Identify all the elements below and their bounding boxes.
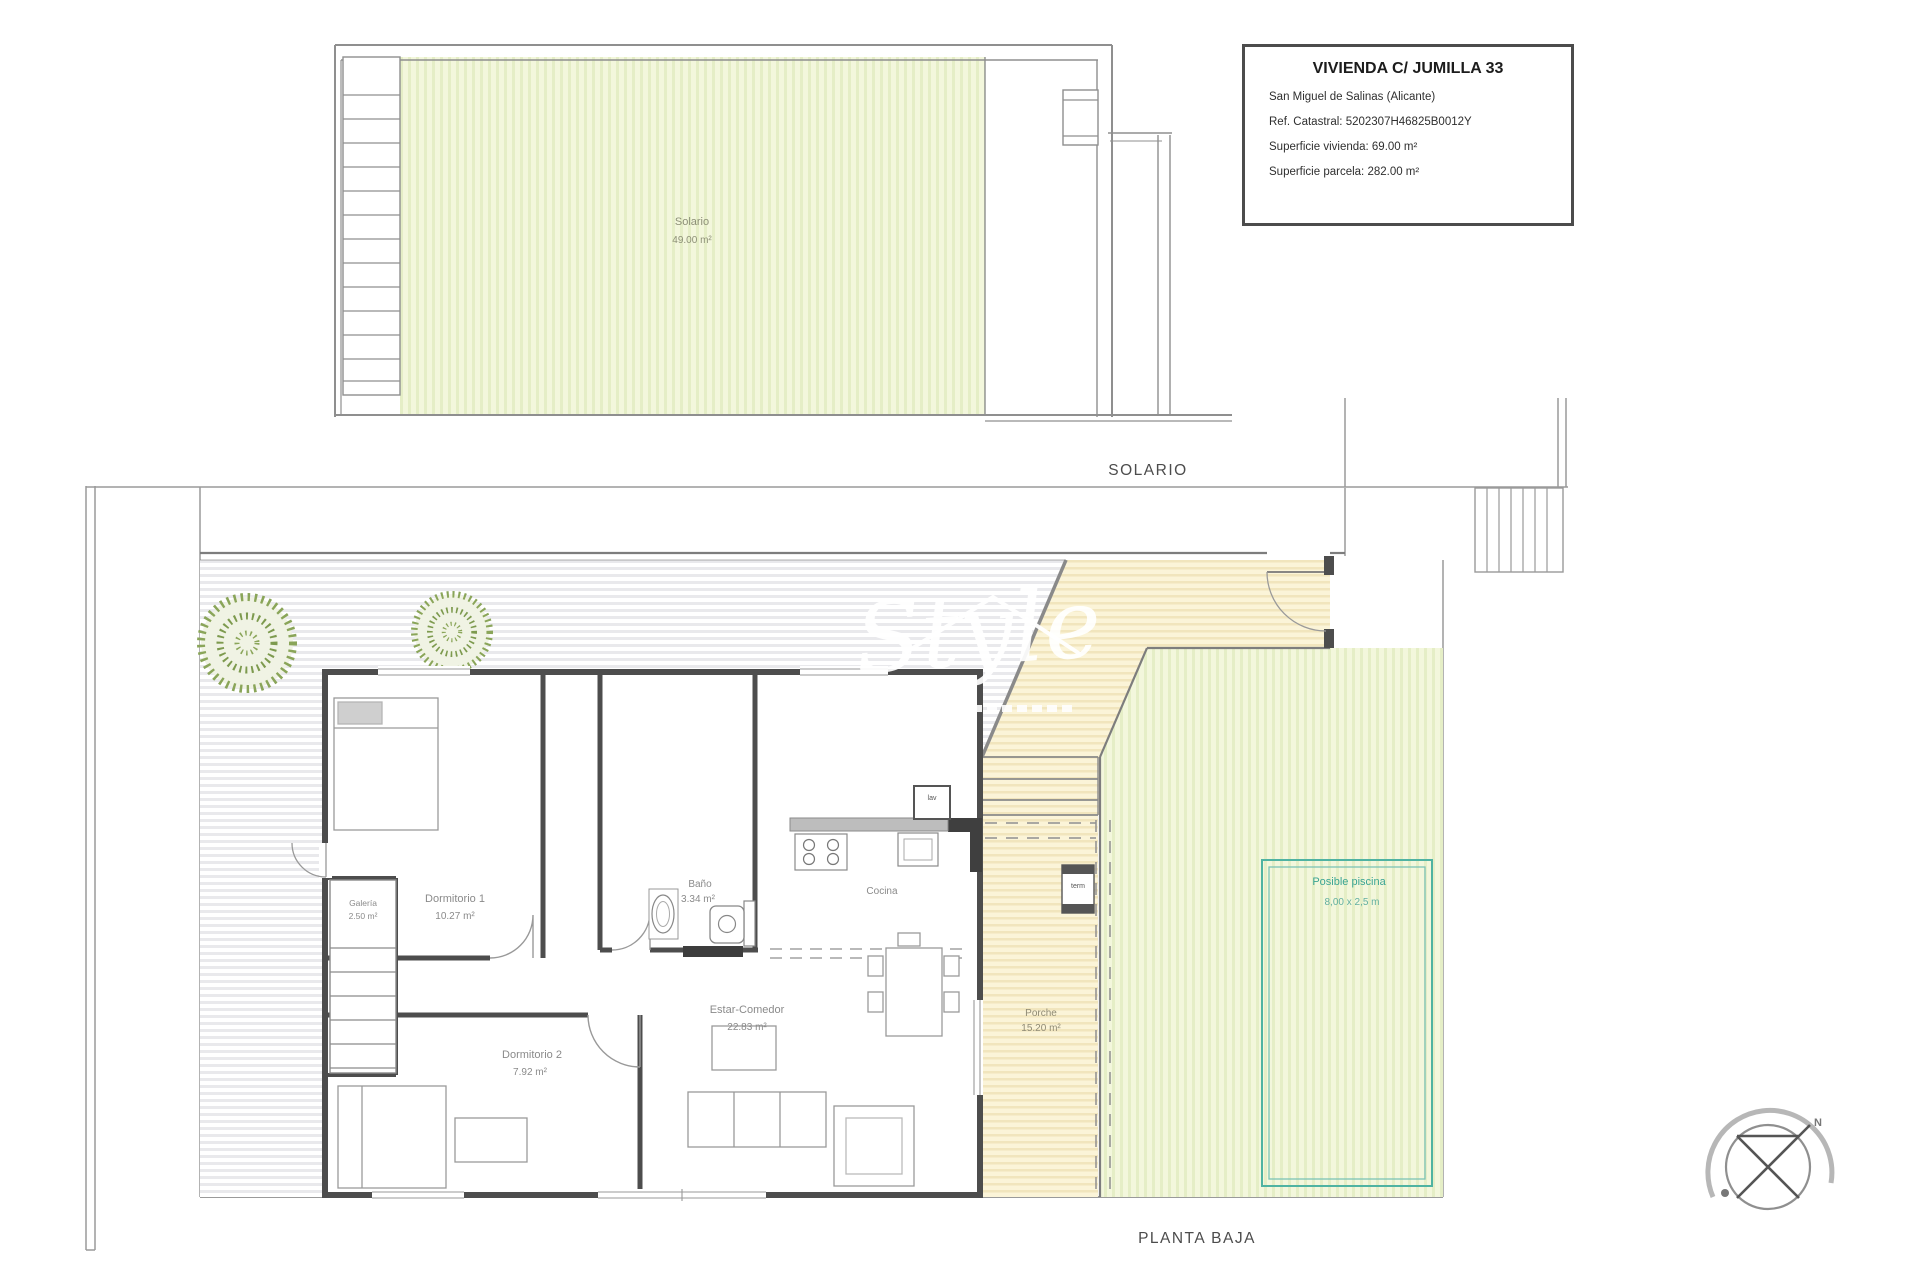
solarium-upper-stair xyxy=(1063,90,1098,145)
cadastral-reference: Ref. Catastral: 5202307H46825B0012Y xyxy=(1269,116,1571,128)
room-area-solario: 49.00 m² xyxy=(672,235,711,246)
hob xyxy=(795,834,847,870)
room-label-solario: Solario xyxy=(675,216,709,228)
caption-solario: SOLARIO xyxy=(1108,462,1187,479)
solarium-plan xyxy=(335,45,1232,421)
floor-plan-page: Style VIVIENDA C/ JUMILLA 33 San Miguel … xyxy=(0,0,1920,1280)
room-label-estar: Estar-Comedor xyxy=(710,1004,785,1016)
house-building xyxy=(292,666,983,1201)
pool-label: Posible piscina xyxy=(1312,876,1385,888)
dwelling-area: Superficie vivienda: 69.00 m² xyxy=(1269,141,1571,153)
room-area-dormitorio2: 7.92 m² xyxy=(513,1067,547,1078)
room-label-dormitorio1: Dormitorio 1 xyxy=(425,893,485,905)
project-title: VIVIENDA C/ JUMILLA 33 xyxy=(1245,60,1571,78)
ground-floor-plan xyxy=(86,398,1568,1250)
dresser xyxy=(455,1118,527,1162)
garden-area xyxy=(1100,648,1443,1197)
room-area-dormitorio1: 10.27 m² xyxy=(435,911,474,922)
room-area-porche: 15.20 m² xyxy=(1021,1023,1060,1034)
room-label-bano: Baño xyxy=(688,879,711,890)
floor-plan-drawing xyxy=(0,0,1920,1280)
toilet xyxy=(710,906,744,943)
room-area-galeria: 2.50 m² xyxy=(349,912,378,921)
room-label-porche: Porche xyxy=(1025,1008,1057,1019)
project-location: San Miguel de Salinas (Alicante) xyxy=(1269,91,1571,103)
sofa xyxy=(688,1092,826,1147)
tree xyxy=(414,594,489,669)
tree xyxy=(201,597,293,689)
dining-table xyxy=(886,948,942,1036)
title-block: VIVIENDA C/ JUMILLA 33 San Miguel de Sal… xyxy=(1242,44,1574,226)
north-label: N xyxy=(1814,1117,1822,1129)
room-area-estar: 22.83 m² xyxy=(727,1022,766,1033)
bed-dorm2 xyxy=(338,1086,446,1188)
pool-dimensions: 8,00 x 2,5 m xyxy=(1324,897,1379,908)
caption-planta-baja: PLANTA BAJA xyxy=(1138,1230,1256,1247)
laundry-box-label: lav xyxy=(928,795,937,803)
room-area-bano: 3.34 m² xyxy=(681,894,715,905)
room-label-cocina: Cocina xyxy=(866,886,897,897)
neighbour-stair xyxy=(1475,488,1563,572)
room-label-galeria: Galería xyxy=(349,899,377,908)
washbasin xyxy=(652,895,674,933)
heater-box-label: term xyxy=(1071,883,1085,891)
bath-wall-band xyxy=(683,946,743,957)
plot-area: Superficie parcela: 282.00 m² xyxy=(1269,166,1571,178)
solarium-stairs xyxy=(343,57,400,395)
compass-needle xyxy=(1737,1125,1810,1198)
room-label-dormitorio2: Dormitorio 2 xyxy=(502,1049,562,1061)
